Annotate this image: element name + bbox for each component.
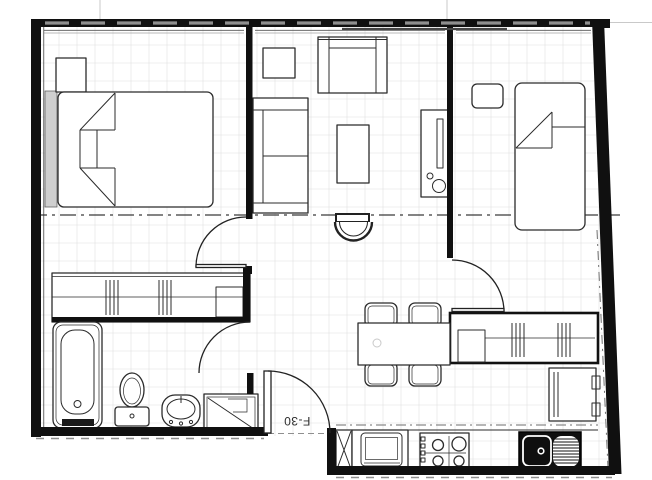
tv-console-icon [421,110,448,197]
kitchen-sink-icon [519,432,581,471]
sofa-icon [253,98,308,213]
bedroom-1-furniture [45,58,213,207]
refrigerator-icon [549,368,600,421]
wall-bathroom-bottom [31,427,268,436]
kitchen-counter [336,430,598,471]
side-table-icon [263,48,295,78]
floor-plan-page: F-30 [0,0,652,480]
bedroom-2-furniture [472,83,585,230]
bathtub-icon [53,322,102,428]
wall-entry-stub [327,428,336,473]
floor-plan-canvas: F-30 [0,0,652,480]
double-bed-icon [58,92,213,207]
shower-icon [204,394,258,432]
cooktop-icon [420,433,469,470]
partition-bedroom1 [246,27,253,219]
wardrobe-icon [52,273,250,322]
dining-set [358,303,450,386]
oven-icon [352,430,408,470]
partition-bedroom2 [447,27,453,258]
utility-cabinet-icon [336,430,352,470]
dining-table-icon [358,323,450,365]
loveseat-icon [318,37,387,93]
single-bed-icon [515,83,585,230]
wall-left [31,19,41,437]
armchair-icon [335,214,372,241]
nightstand-icon [472,84,503,108]
door-swing-icon [199,322,250,373]
coffee-table-icon [337,125,369,183]
washbasin-icon [162,395,200,427]
toilet-icon [115,373,149,426]
bathroom-door-stub [247,373,254,394]
wall-kitchen-bottom [327,466,615,475]
bathroom-fixtures [53,322,258,432]
unit-number-label: F-30 [284,414,311,428]
wardrobe-icon [450,313,598,363]
nightstand-icon [56,58,86,92]
wall-corner-notch [604,19,610,28]
headboard [45,91,57,207]
door-swing-icon [452,260,504,312]
